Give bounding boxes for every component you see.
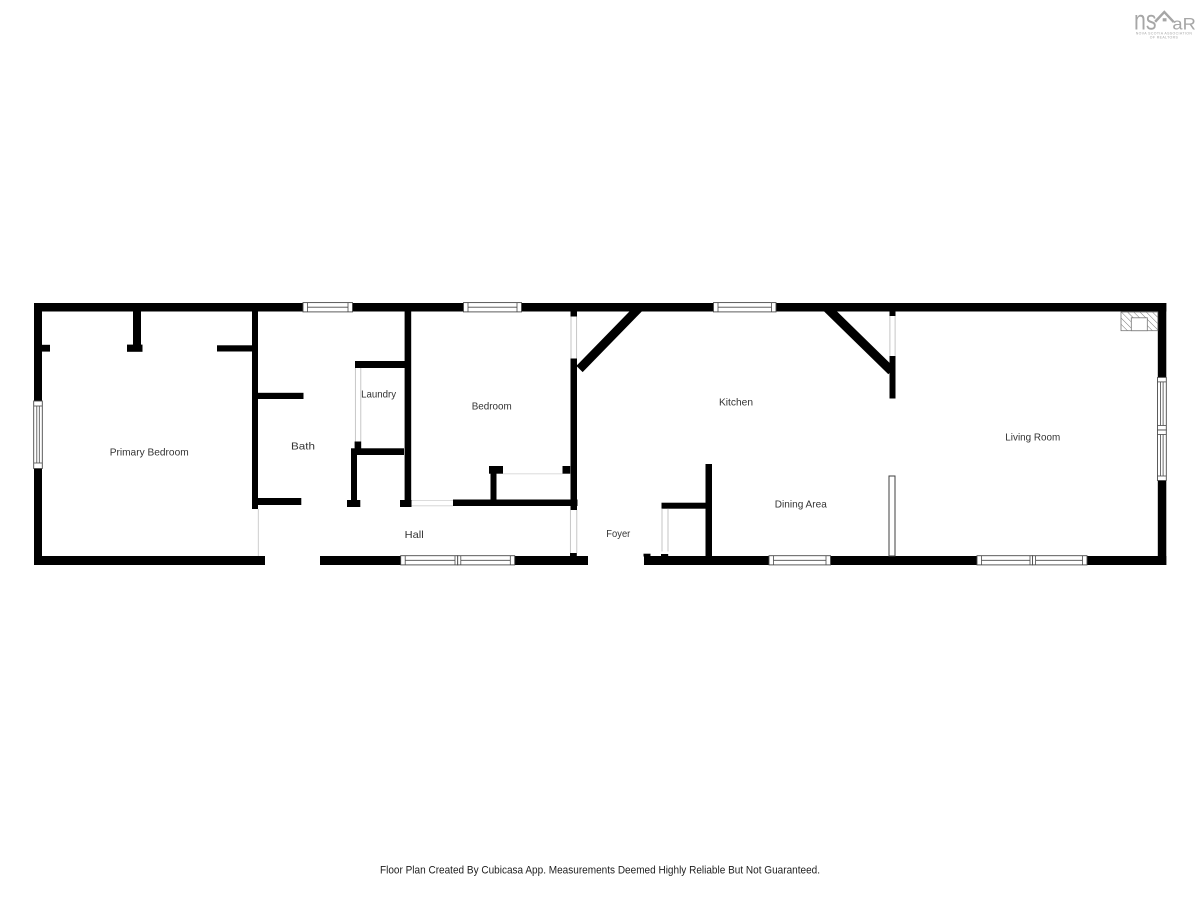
svg-text:Dining Area: Dining Area <box>775 499 827 511</box>
svg-text:Living Room: Living Room <box>1005 432 1060 444</box>
svg-text:Bedroom: Bedroom <box>472 401 512 413</box>
svg-text:OF REALTORS: OF REALTORS <box>1150 35 1179 39</box>
svg-text:Primary Bedroom: Primary Bedroom <box>110 447 189 459</box>
svg-text:Floor Plan Created By Cubicasa: Floor Plan Created By Cubicasa App. Meas… <box>380 864 820 876</box>
svg-text:Foyer: Foyer <box>606 528 630 540</box>
svg-text:Kitchen: Kitchen <box>719 397 753 409</box>
svg-text:Bath: Bath <box>291 441 315 453</box>
svg-text:Laundry: Laundry <box>361 388 397 400</box>
svg-text:Hall: Hall <box>405 529 424 541</box>
